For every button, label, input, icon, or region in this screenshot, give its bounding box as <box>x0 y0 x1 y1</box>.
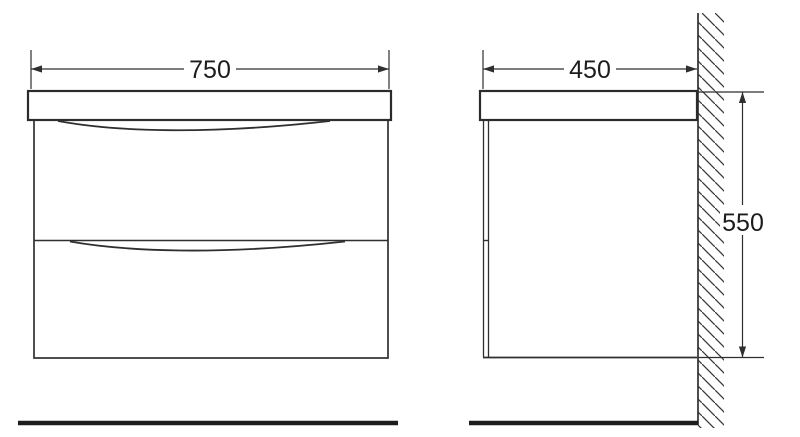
side-view: 450 550 <box>480 13 766 428</box>
front-dim-arrow-left <box>31 65 42 72</box>
front-cabinet-body <box>34 120 388 358</box>
height-dim-arrow-bottom <box>739 347 746 358</box>
side-height-dimension-label: 550 <box>722 209 764 237</box>
vanity-dimension-drawing: 750 450 <box>0 0 800 437</box>
front-view: 750 <box>28 50 391 358</box>
front-width-dimension-label: 750 <box>189 56 231 84</box>
front-dim-arrow-right <box>378 65 389 72</box>
side-dim-arrow-right <box>686 65 697 72</box>
side-dim-arrow-left <box>483 65 494 72</box>
height-dim-arrow-top <box>739 92 746 103</box>
side-countertop <box>480 91 697 120</box>
front-top-drawer-handle-curve <box>58 121 330 130</box>
side-depth-dimension-label: 450 <box>569 56 611 84</box>
front-countertop <box>28 91 391 120</box>
front-bottom-drawer-handle-curve <box>70 242 345 251</box>
